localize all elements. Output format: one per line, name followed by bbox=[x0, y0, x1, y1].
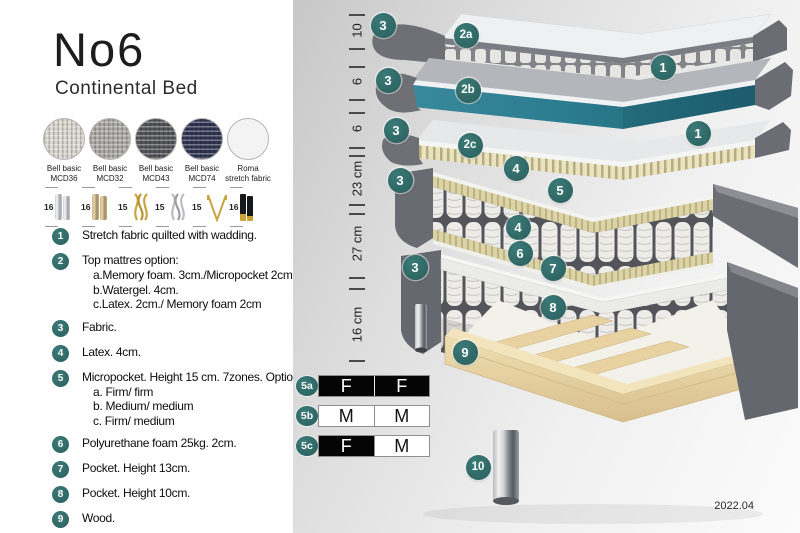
list-item-subtext: b. Medium/ medium bbox=[93, 399, 302, 414]
callout-badge-2b: 2b bbox=[456, 78, 481, 103]
fabric-swatch-icon bbox=[227, 118, 269, 160]
list-item-text: Wood. bbox=[82, 511, 115, 526]
list-item-text: Fabric. bbox=[82, 320, 117, 335]
firmness-cell: F bbox=[319, 376, 374, 396]
swatch-label: Bell basicMCD32 bbox=[93, 164, 127, 183]
firmness-row-label: 5b bbox=[296, 406, 318, 426]
list-item: 2Top mattres option:a.Memory foam. 3cm./… bbox=[52, 253, 292, 312]
ruler-tick bbox=[349, 360, 365, 362]
callout-badge-3: 3 bbox=[403, 255, 428, 280]
page-title: No6 bbox=[53, 22, 145, 77]
fabric-swatch-icon bbox=[43, 118, 85, 160]
hairpin-leg-icon bbox=[203, 192, 229, 222]
leg-option-6: 16 bbox=[229, 186, 266, 228]
list-item-text: Top mattres option: bbox=[82, 253, 293, 268]
swatch-mcd36: Bell basicMCD36 bbox=[41, 118, 87, 183]
list-item-subtext: a. Firm/ firm bbox=[93, 385, 302, 400]
callout-badge-3: 3 bbox=[371, 13, 396, 38]
fabric-swatches: Bell basicMCD36 Bell basicMCD32 Bell bas… bbox=[41, 118, 271, 183]
callout-badge-3: 3 bbox=[376, 68, 401, 93]
ruler-label: 27 cm bbox=[350, 214, 365, 274]
callout-badge-4: 4 bbox=[506, 215, 531, 240]
swatch-mcd32: Bell basicMCD32 bbox=[87, 118, 133, 183]
list-item-body: Top mattres option:a.Memory foam. 3cm./M… bbox=[82, 253, 293, 312]
list-item-number: 8 bbox=[52, 486, 69, 503]
list-item-body: Wood. bbox=[82, 511, 115, 528]
list-item-text: Pocket. Height 10cm. bbox=[82, 486, 190, 501]
twist-gold-leg-icon bbox=[129, 192, 153, 222]
infographic: No6 Continental Bed Bell basicMCD36 Bell… bbox=[0, 0, 800, 533]
list-item-number: 2 bbox=[52, 253, 69, 270]
list-item: 1Stretch fabric quilted with wadding. bbox=[52, 228, 292, 245]
callout-badge-1: 1 bbox=[651, 55, 676, 80]
feature-list: 1Stretch fabric quilted with wadding.2To… bbox=[52, 228, 292, 533]
page-subtitle: Continental Bed bbox=[55, 78, 198, 100]
list-item-body: Pocket. Height 13cm. bbox=[82, 461, 190, 478]
list-item-number: 1 bbox=[52, 228, 69, 245]
list-item-body: Micropocket. Height 15 cm. 7zones. Optio… bbox=[82, 370, 302, 429]
list-item-text: Polyurethane foam 25kg. 2cm. bbox=[82, 436, 236, 451]
firmness-row-label: 5c bbox=[296, 436, 318, 456]
list-item-subtext: a.Memory foam. 3cm./Micropocket 2cm bbox=[93, 268, 293, 283]
list-item: 7Pocket. Height 13cm. bbox=[52, 461, 292, 478]
callout-badge-1: 1 bbox=[686, 121, 711, 146]
list-item-text: Stretch fabric quilted with wadding. bbox=[82, 228, 257, 243]
ruler-tick bbox=[349, 277, 365, 279]
fabric-swatch-icon bbox=[181, 118, 223, 160]
list-item-body: Pocket. Height 10cm. bbox=[82, 486, 190, 503]
swatch-roma: Romastretch fabric bbox=[225, 118, 271, 183]
list-item-subtext: c.Latex. 2cm./ Memory foam 2cm bbox=[93, 297, 293, 312]
list-item: 8Pocket. Height 10cm. bbox=[52, 486, 292, 503]
twist-silver-leg-icon bbox=[166, 192, 190, 222]
ruler-label: 23 cm bbox=[350, 149, 365, 209]
leg-option-1: 16 bbox=[44, 186, 81, 228]
callout-badge-10: 10 bbox=[466, 455, 491, 480]
list-item-text: Micropocket. Height 15 cm. 7zones. Optio… bbox=[82, 370, 302, 385]
fabric-swatch-icon bbox=[89, 118, 131, 160]
list-item-body: Fabric. bbox=[82, 320, 117, 337]
leg-size-label: 15 bbox=[192, 202, 201, 212]
taper-black-gold-leg-icon bbox=[240, 194, 253, 221]
list-item-body: Stretch fabric quilted with wadding. bbox=[82, 228, 257, 245]
leg-option-4: 15 bbox=[155, 186, 192, 228]
swatch-label: Bell basicMCD74 bbox=[185, 164, 219, 183]
leg-options: 16 16 15 15 bbox=[44, 186, 266, 228]
firmness-row: FM bbox=[318, 435, 430, 457]
ruler-tick bbox=[349, 204, 365, 206]
list-item-subtext: c. Firm/ medium bbox=[93, 414, 302, 429]
callout-badge-2a: 2a bbox=[454, 23, 479, 48]
cylinder-wood-leg-icon bbox=[92, 194, 107, 220]
firmness-cell: M bbox=[374, 406, 430, 426]
callout-badge-7: 7 bbox=[541, 256, 566, 281]
leg-size-label: 15 bbox=[155, 202, 164, 212]
list-item-body: Polyurethane foam 25kg. 2cm. bbox=[82, 436, 236, 453]
leg-size-label: 16 bbox=[229, 202, 238, 212]
list-item-subtext: b.Watergel. 4cm. bbox=[93, 283, 293, 298]
swatch-mcd43: Bell basicMCD43 bbox=[133, 118, 179, 183]
swatch-mcd74: Bell basicMCD74 bbox=[179, 118, 225, 183]
firmness-cell: F bbox=[319, 436, 374, 456]
list-item: 6Polyurethane foam 25kg. 2cm. bbox=[52, 436, 292, 453]
firmness-cell: M bbox=[374, 436, 430, 456]
leg-option-2: 16 bbox=[81, 186, 118, 228]
list-item-number: 9 bbox=[52, 511, 69, 528]
list-item: 5Micropocket. Height 15 cm. 7zones. Opti… bbox=[52, 370, 292, 429]
bed-diagram-panel: 106623 cm27 cm16 cm 32a132b132c345436789… bbox=[293, 0, 800, 533]
callout-badge-3: 3 bbox=[384, 118, 409, 143]
firmness-row: FF bbox=[318, 375, 430, 397]
list-item-number: 3 bbox=[52, 320, 69, 337]
swatch-label: Bell basicMCD43 bbox=[139, 164, 173, 183]
firmness-row-label: 5a bbox=[296, 376, 318, 396]
ruler-label: 16 cm bbox=[350, 295, 365, 355]
list-item-text: Pocket. Height 13cm. bbox=[82, 461, 190, 476]
list-item-number: 5 bbox=[52, 370, 69, 387]
cylinder-silver-leg-icon bbox=[55, 194, 70, 220]
callout-badge-5: 5 bbox=[548, 178, 573, 203]
firmness-cell: M bbox=[319, 406, 374, 426]
firmness-row: MM bbox=[318, 405, 430, 427]
list-item-body: Latex. 4cm. bbox=[82, 345, 141, 362]
leg-option-5: 15 bbox=[192, 186, 229, 228]
ruler-tick bbox=[349, 288, 365, 290]
callout-badge-2c: 2c bbox=[458, 133, 483, 158]
list-item-number: 4 bbox=[52, 345, 69, 362]
swatch-label: Bell basicMCD36 bbox=[47, 164, 81, 183]
ground-shadow bbox=[423, 504, 763, 524]
callout-badge-9: 9 bbox=[453, 340, 478, 365]
version-label: 2022.04 bbox=[714, 500, 754, 512]
list-item-number: 7 bbox=[52, 461, 69, 478]
leg-size-label: 16 bbox=[44, 202, 53, 212]
fabric-swatch-icon bbox=[135, 118, 177, 160]
list-item: 4Latex. 4cm. bbox=[52, 345, 292, 362]
list-item-number: 6 bbox=[52, 436, 69, 453]
swatch-label: Romastretch fabric bbox=[225, 164, 271, 183]
leg-size-label: 15 bbox=[118, 202, 127, 212]
list-item: 3Fabric. bbox=[52, 320, 292, 337]
ruler-tick bbox=[349, 48, 365, 50]
info-panel: No6 Continental Bed Bell basicMCD36 Bell… bbox=[0, 0, 293, 533]
list-item: 9Wood. bbox=[52, 511, 292, 528]
callout-badge-8: 8 bbox=[541, 295, 566, 320]
callout-badge-4: 4 bbox=[504, 156, 529, 181]
callout-badge-6: 6 bbox=[508, 241, 533, 266]
list-item-text: Latex. 4cm. bbox=[82, 345, 141, 360]
leg-size-label: 16 bbox=[81, 202, 90, 212]
firmness-cell: F bbox=[374, 376, 430, 396]
leg-option-3: 15 bbox=[118, 186, 155, 228]
layer-latex-2c bbox=[382, 120, 791, 180]
callout-badge-3: 3 bbox=[388, 168, 413, 193]
